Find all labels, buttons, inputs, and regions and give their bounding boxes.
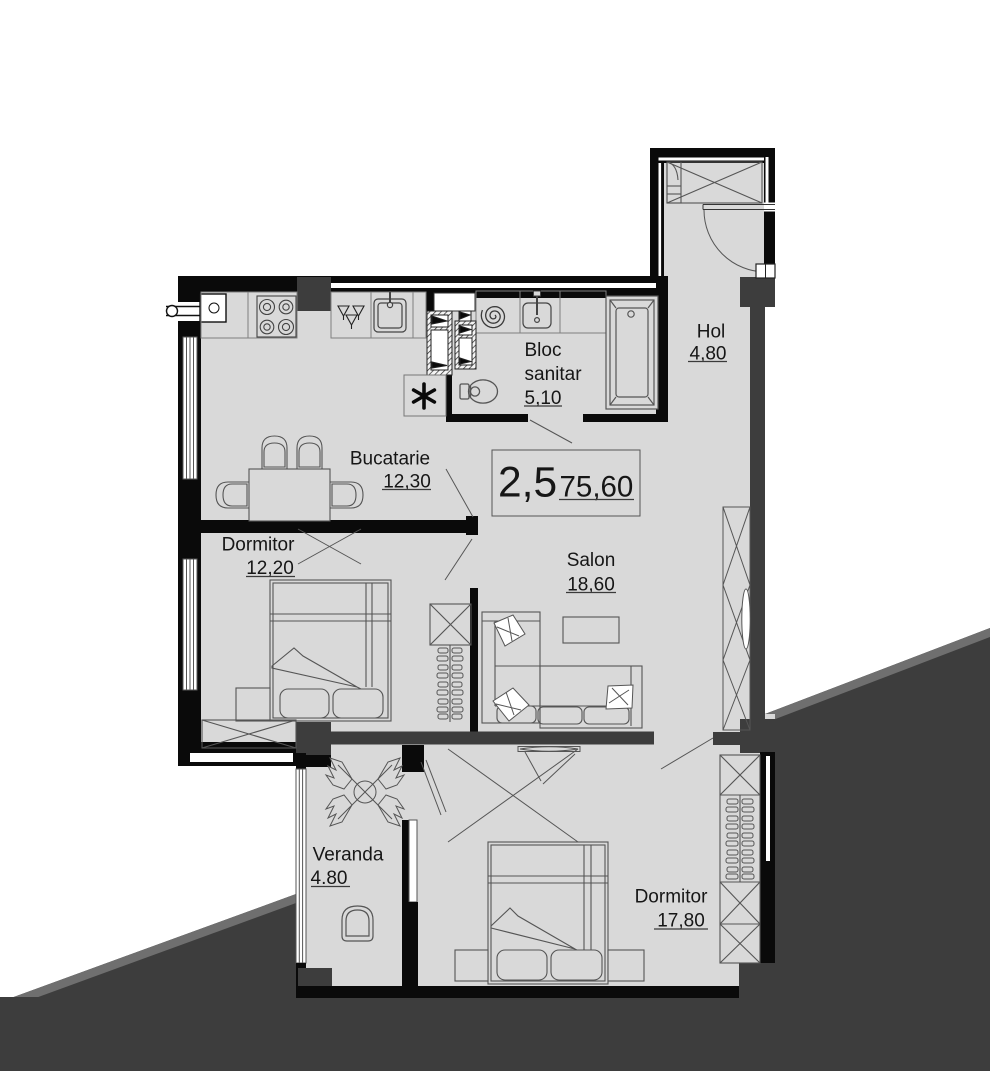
svg-text:75,60: 75,60: [560, 471, 634, 504]
svg-text:4.80: 4.80: [311, 868, 348, 889]
svg-text:Dormitor: Dormitor: [222, 535, 296, 556]
svg-text:sanitar: sanitar: [525, 364, 583, 385]
svg-text:2,5: 2,5: [498, 460, 557, 507]
svg-text:Veranda: Veranda: [313, 845, 384, 866]
svg-text:12,20: 12,20: [246, 558, 294, 579]
svg-text:17,80: 17,80: [657, 911, 705, 932]
svg-text:Salon: Salon: [567, 550, 616, 571]
svg-text:Hol: Hol: [697, 322, 726, 343]
svg-text:Dormitor: Dormitor: [635, 887, 709, 908]
svg-text:Bucatarie: Bucatarie: [350, 449, 430, 470]
svg-text:Bloc: Bloc: [525, 340, 562, 361]
